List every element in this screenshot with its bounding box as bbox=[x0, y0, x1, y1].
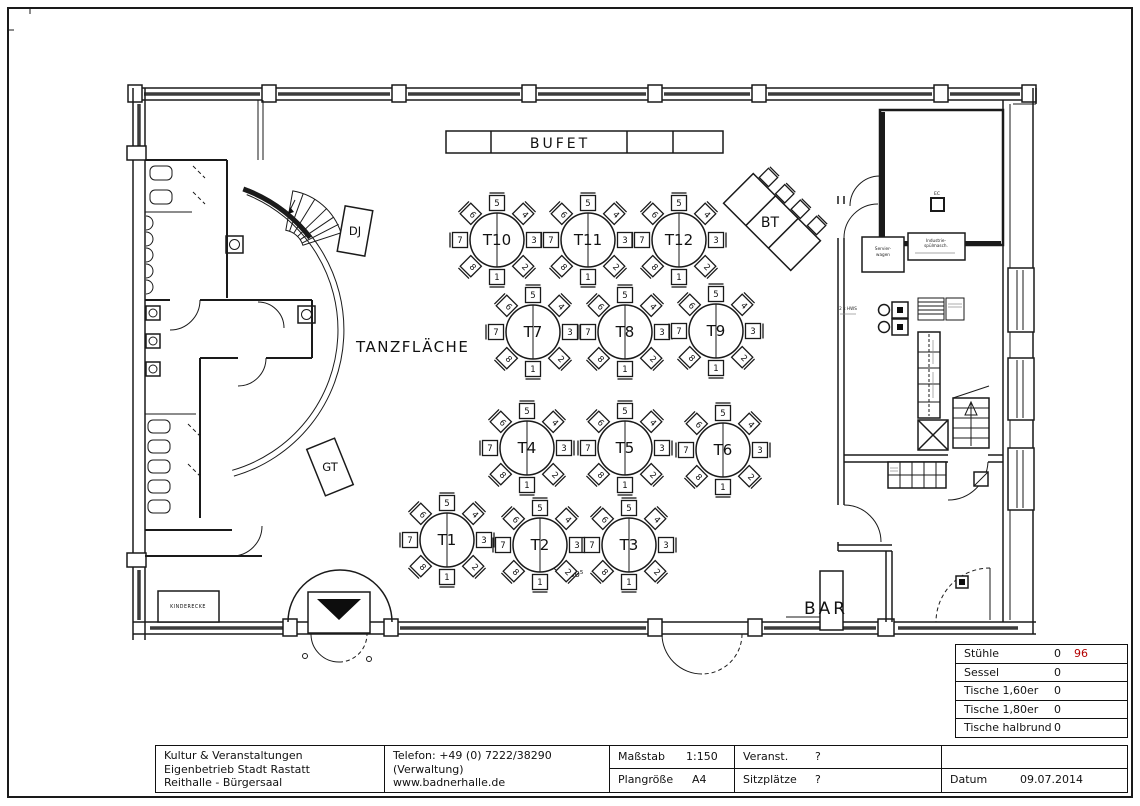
chair-number: 1 bbox=[622, 481, 627, 491]
kids-corner: KINDERECKE bbox=[158, 591, 219, 622]
top-wall bbox=[128, 85, 1036, 104]
legend-value: 0 bbox=[1054, 664, 1061, 681]
chair-number: 5 bbox=[494, 199, 499, 209]
entrance bbox=[288, 570, 392, 662]
hws-label: 2 x HWS bbox=[839, 306, 857, 311]
round-table-T1: 12345678T1 bbox=[400, 493, 494, 587]
title-block-contact: Telefon: +49 (0) 7222/38290 (Verwaltung)… bbox=[385, 746, 610, 792]
chair-number: 5 bbox=[585, 199, 590, 209]
chair-number: 5 bbox=[444, 499, 449, 509]
table-label: T2 bbox=[530, 536, 550, 554]
buffet-counter: BUFET bbox=[446, 131, 723, 153]
restrooms bbox=[145, 100, 344, 556]
bottom-wall bbox=[133, 619, 1036, 674]
chair-number: 1 bbox=[713, 364, 718, 374]
round-table-T5: 12345678T5 bbox=[578, 401, 672, 495]
dancefloor-label: TANZFLÄCHE bbox=[355, 337, 469, 356]
table-label: T8 bbox=[615, 323, 635, 341]
table-label: T9 bbox=[706, 322, 726, 340]
dj-label: DJ bbox=[349, 224, 361, 238]
legend-value: 0 bbox=[1054, 682, 1061, 699]
chair-number: 3 bbox=[481, 536, 486, 546]
chair-number: 1 bbox=[626, 578, 631, 588]
chair-number: 7 bbox=[676, 327, 681, 337]
bt-table: BT bbox=[724, 162, 833, 271]
round-table-T7: 12345678T7 bbox=[486, 285, 580, 379]
contact-dept: (Verwaltung) bbox=[393, 763, 609, 777]
legend-label: Sessel bbox=[964, 666, 999, 679]
round-table-T2: 12345678T2 bbox=[493, 498, 587, 592]
chair-number: 5 bbox=[537, 504, 542, 514]
chair-number: 7 bbox=[585, 444, 590, 454]
chair-number: 3 bbox=[659, 444, 664, 454]
chair-number: 5 bbox=[524, 407, 529, 417]
chair-number: 3 bbox=[713, 236, 718, 246]
contact-phone: Telefon: +49 (0) 7222/38290 bbox=[393, 749, 609, 763]
chair-number: 5 bbox=[676, 199, 681, 209]
chair-number: 7 bbox=[683, 446, 688, 456]
legend-row: Tische halbrund 0 bbox=[955, 718, 1128, 738]
table-label: T6 bbox=[713, 441, 733, 459]
date-value: 09.07.2014 bbox=[1020, 769, 1083, 790]
round-tables: 12345678T112345678T212345678T312345678T4… bbox=[400, 193, 770, 592]
round-table-T10: 12345678T10 bbox=[450, 193, 544, 287]
legend-row: Stühle 0 96 bbox=[955, 644, 1128, 664]
chair-number: 1 bbox=[537, 578, 542, 588]
legend-label: Tische 1,60er bbox=[964, 684, 1038, 697]
chair-number: 7 bbox=[585, 328, 590, 338]
storage-room: EC bbox=[850, 110, 1003, 245]
chair-number: 5 bbox=[622, 407, 627, 417]
org-line: Kultur & Veranstaltungen bbox=[164, 749, 384, 763]
chair-number: 7 bbox=[407, 536, 412, 546]
chair-number: 3 bbox=[622, 236, 627, 246]
plansize-value: A4 bbox=[692, 769, 707, 790]
legend-value: 0 bbox=[1054, 701, 1061, 718]
kinderecke-label: KINDERECKE bbox=[170, 604, 206, 610]
chair-number: 7 bbox=[589, 541, 594, 551]
org-line: Eigenbetrieb Stadt Rastatt bbox=[164, 763, 384, 777]
bt-label: BT bbox=[761, 215, 780, 231]
chair-number: 5 bbox=[713, 290, 718, 300]
round-table-T12: 12345678T12 bbox=[632, 193, 726, 287]
chair-number: 3 bbox=[750, 327, 755, 337]
title-block: Kultur & Veranstaltungen Eigenbetrieb St… bbox=[155, 745, 1128, 793]
chair-number: 7 bbox=[500, 541, 505, 551]
legend-value: 0 bbox=[1054, 645, 1061, 662]
legend-row: Sessel 0 bbox=[955, 663, 1128, 683]
date-label: Datum bbox=[950, 773, 987, 786]
round-table-T3: 12345678T3 bbox=[582, 498, 676, 592]
table-label: T7 bbox=[523, 323, 543, 341]
round-table-T11: 12345678T11 bbox=[541, 193, 635, 287]
chair-number: 3 bbox=[561, 444, 566, 454]
legend-label: Stühle bbox=[964, 647, 999, 660]
chair-number: 7 bbox=[493, 328, 498, 338]
chair-number: 7 bbox=[548, 236, 553, 246]
table-label: T1 bbox=[437, 531, 457, 549]
chair-number: 3 bbox=[757, 446, 762, 456]
legend-extra-value: 96 bbox=[1074, 645, 1088, 662]
spuelmaschine-label: spülmasch. bbox=[924, 243, 948, 248]
table-label: T11 bbox=[573, 231, 602, 249]
chair-number: 7 bbox=[487, 444, 492, 454]
plansize-label: Plangröße bbox=[618, 773, 673, 786]
seats-value: ? bbox=[815, 769, 821, 790]
chair-number: 7 bbox=[457, 236, 462, 246]
chair-number: 5 bbox=[720, 409, 725, 419]
kitchen: Servier- wagen Industrie- spülmasch. 2 x… bbox=[838, 196, 1003, 622]
furniture-legend: Stühle 0 96 Sessel 0 Tische 1,60er 0 Tis… bbox=[955, 646, 1128, 738]
chair-number: 3 bbox=[531, 236, 536, 246]
chair-number: 5 bbox=[626, 504, 631, 514]
staircase bbox=[286, 191, 341, 245]
table-label: T10 bbox=[482, 231, 511, 249]
right-wall bbox=[1003, 88, 1034, 634]
servierwagen-label: wagen bbox=[876, 252, 890, 257]
legend-value: 0 bbox=[1054, 719, 1061, 736]
table-label: T12 bbox=[664, 231, 693, 249]
chair-number: 3 bbox=[659, 328, 664, 338]
table-label: T4 bbox=[517, 439, 537, 457]
chair-number: 1 bbox=[622, 365, 627, 375]
round-table-T4: 12345678T4 bbox=[480, 401, 574, 495]
event-label: Veranst. bbox=[743, 750, 788, 763]
title-block-organisation: Kultur & Veranstaltungen Eigenbetrieb St… bbox=[156, 746, 385, 792]
org-line: Reithalle - Bürgersaal bbox=[164, 776, 384, 790]
seats-label: Sitzplätze bbox=[743, 773, 797, 786]
event-value: ? bbox=[815, 746, 821, 767]
table-label: T5 bbox=[615, 439, 635, 457]
scale-value: 1:150 bbox=[686, 746, 718, 767]
legend-row: Tische 1,80er 0 bbox=[955, 700, 1128, 720]
chair-number: 1 bbox=[676, 273, 681, 283]
chair-number: 1 bbox=[530, 365, 535, 375]
chair-number: 5 bbox=[530, 291, 535, 301]
scale-label: Maßstab bbox=[618, 750, 665, 763]
round-table-T8: 12345678T8 bbox=[578, 285, 672, 379]
chair-number: 3 bbox=[663, 541, 668, 551]
round-table-T9: 12345678T9 bbox=[669, 284, 763, 378]
legend-label: Tische halbrund bbox=[964, 721, 1052, 734]
chair-number: 7 bbox=[639, 236, 644, 246]
legend-row: Tische 1,60er 0 bbox=[955, 681, 1128, 701]
table-label: T3 bbox=[619, 536, 639, 554]
gt-booth: GT bbox=[307, 438, 354, 496]
measure-sup: 5 bbox=[580, 570, 584, 576]
gt-label: GT bbox=[322, 460, 339, 474]
chair-number: 1 bbox=[444, 573, 449, 583]
chair-number: 1 bbox=[585, 273, 590, 283]
round-table-T6: 12345678T6 bbox=[676, 403, 770, 497]
chair-number: 1 bbox=[524, 481, 529, 491]
legend-label: Tische 1,80er bbox=[964, 703, 1038, 716]
chair-number: 5 bbox=[622, 291, 627, 301]
contact-website: www.badnerhalle.de bbox=[393, 776, 609, 790]
title-block-scale: Maßstab 1:150 Plangröße A4 bbox=[610, 746, 735, 792]
left-wall bbox=[127, 88, 146, 640]
ec-label: EC bbox=[934, 191, 940, 197]
chair-number: 1 bbox=[720, 483, 725, 493]
chair-number: 1 bbox=[494, 273, 499, 283]
floor-plan-sheet: { "plan": { "labels": { "bufet": "BUFET"… bbox=[0, 0, 1140, 806]
dj-booth: DJ bbox=[337, 206, 373, 256]
buffet-label: BUFET bbox=[530, 136, 590, 152]
chair-number: 3 bbox=[567, 328, 572, 338]
title-block-date: Datum 09.07.2014 bbox=[942, 746, 1127, 792]
title-block-event: Veranst. ? Sitzplätze ? bbox=[735, 746, 942, 792]
servierwagen-label: Servier- bbox=[875, 246, 892, 251]
bar-label: BAR bbox=[804, 599, 848, 619]
chair-number: 3 bbox=[574, 541, 579, 551]
